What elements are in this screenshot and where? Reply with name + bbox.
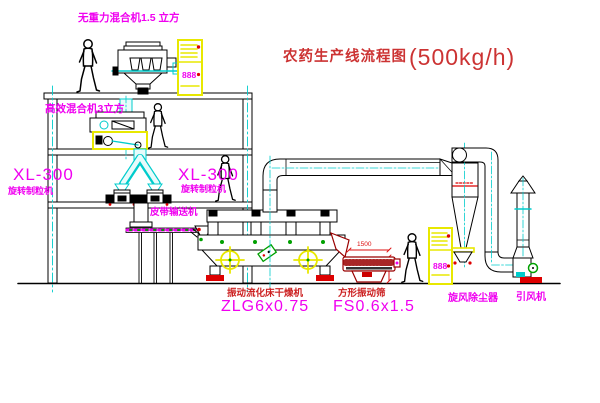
cabinet-display-bottom: 888 xyxy=(433,261,447,271)
process-flow-drawing: 888 xyxy=(0,0,600,403)
granulator-left-drawing xyxy=(106,184,138,206)
belt-conveyor-drawing xyxy=(126,228,199,283)
cad-canvas: 888 xyxy=(0,0,600,403)
gravity-free-mixer-drawing xyxy=(112,42,182,94)
person-ground xyxy=(402,234,423,283)
induced-fan-drawing xyxy=(513,258,542,283)
vibrating-screen-drawing xyxy=(331,233,400,283)
person-floor2 xyxy=(216,156,236,201)
cabinet-display-top: 888 xyxy=(182,70,196,80)
person-roof xyxy=(77,40,100,92)
control-cabinet-top: 888 xyxy=(178,40,202,95)
control-cabinet-bottom: 888 xyxy=(429,228,452,284)
person-floor1 xyxy=(149,104,168,148)
